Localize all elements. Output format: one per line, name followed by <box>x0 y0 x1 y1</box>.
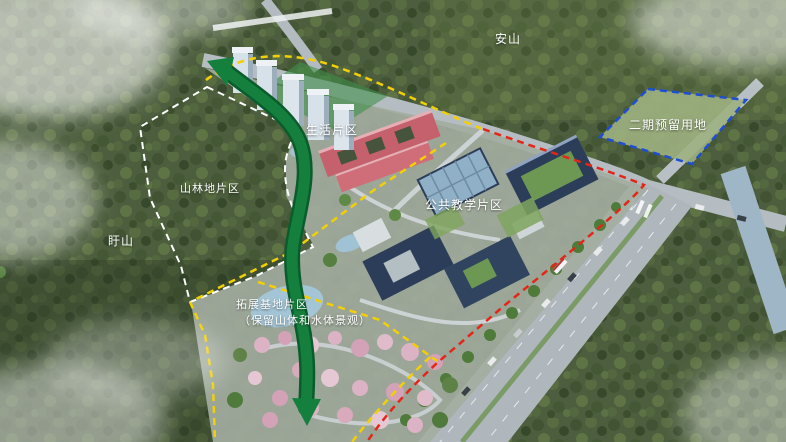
label-expansion-note: （保留山体和水体景观） <box>239 313 371 327</box>
label-expansion-district: 拓展基地片区 <box>236 297 308 311</box>
label-living-district: 生活片区 <box>306 123 358 137</box>
label-teaching-district: 公共教学片区 <box>425 197 503 212</box>
label-mountain-left: 盱山 <box>108 234 134 248</box>
label-forest-district: 山林地片区 <box>180 181 240 195</box>
masterplan-rendering: 安山 二期预留用地 生活片区 山林地片区 盱山 公共教学片区 拓展基地片区 （保… <box>0 0 786 442</box>
masterplan-canvas: 安山 二期预留用地 生活片区 山林地片区 盱山 公共教学片区 拓展基地片区 （保… <box>0 0 786 442</box>
label-mountain-top: 安山 <box>495 31 521 46</box>
label-phase2: 二期预留用地 <box>629 118 707 132</box>
